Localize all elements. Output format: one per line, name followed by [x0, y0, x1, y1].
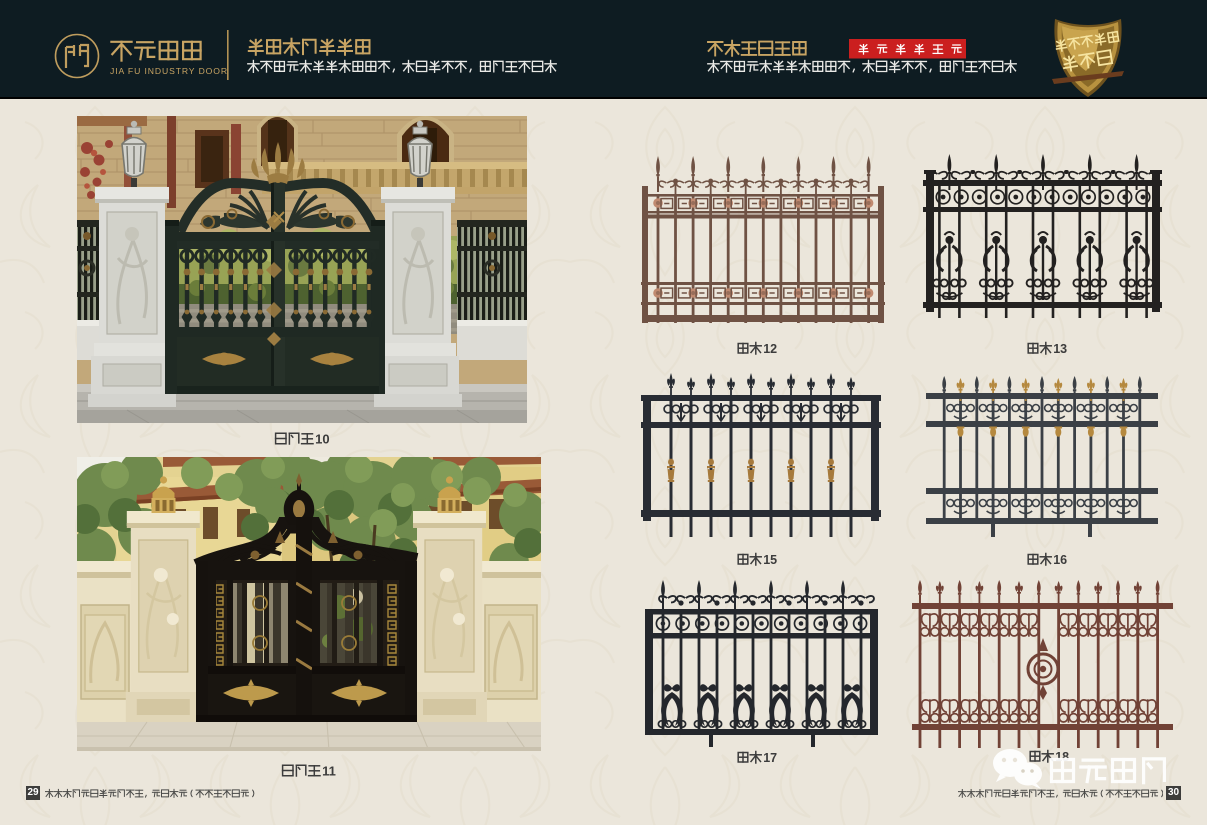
svg-text:16: 16	[1053, 553, 1067, 567]
svg-text:17: 17	[763, 751, 777, 765]
svg-text:11: 11	[322, 764, 336, 779]
svg-text:10: 10	[315, 432, 329, 447]
svg-text:15: 15	[763, 553, 777, 567]
svg-text:13: 13	[1053, 342, 1067, 356]
svg-text:12: 12	[763, 342, 777, 356]
svg-text:JIA FU INDUSTRY DOOR: JIA FU INDUSTRY DOOR	[110, 66, 228, 76]
